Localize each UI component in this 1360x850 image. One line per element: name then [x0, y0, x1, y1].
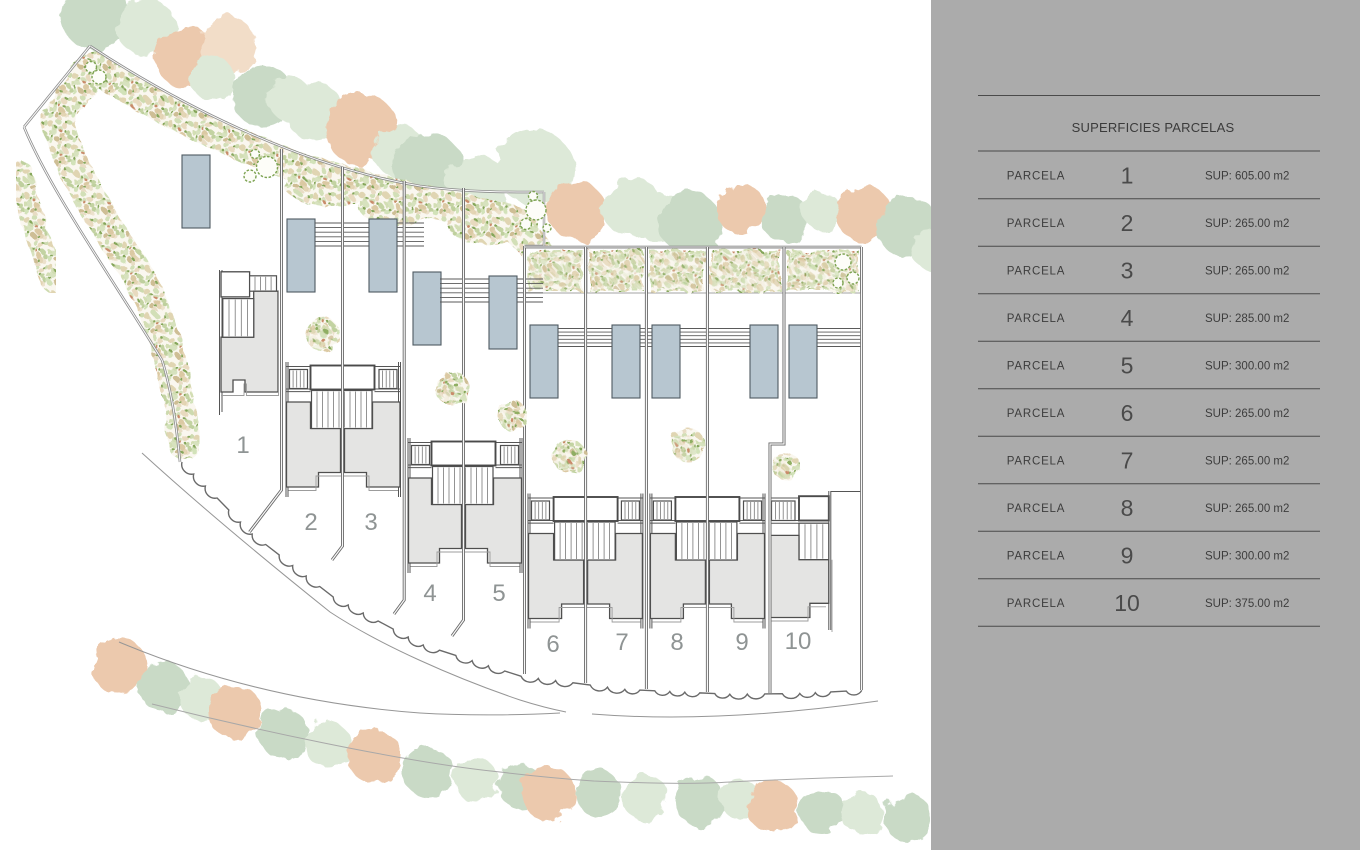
svg-text:SUP: 605.00 m2: SUP: 605.00 m2 — [1205, 171, 1289, 183]
svg-text:SUP: 285.00 m2: SUP: 285.00 m2 — [1205, 313, 1289, 325]
svg-text:8: 8 — [670, 629, 683, 656]
svg-text:6: 6 — [546, 631, 559, 658]
svg-text:PARCELA: PARCELA — [1007, 218, 1065, 230]
svg-text:SUP: 300.00 m2: SUP: 300.00 m2 — [1205, 361, 1289, 373]
svg-text:2: 2 — [1121, 210, 1134, 236]
svg-text:SUP: 265.00 m2: SUP: 265.00 m2 — [1205, 503, 1289, 515]
svg-text:1: 1 — [236, 432, 249, 459]
svg-text:SUP: 265.00 m2: SUP: 265.00 m2 — [1205, 266, 1289, 278]
svg-text:10: 10 — [785, 628, 812, 655]
svg-text:PARCELA: PARCELA — [1007, 503, 1065, 515]
svg-text:8: 8 — [1121, 495, 1134, 521]
svg-text:7: 7 — [1121, 448, 1134, 474]
svg-text:SUP: 300.00 m2: SUP: 300.00 m2 — [1205, 551, 1289, 563]
svg-text:PARCELA: PARCELA — [1007, 361, 1065, 373]
svg-text:SUP: 265.00 m2: SUP: 265.00 m2 — [1205, 408, 1289, 420]
svg-text:4: 4 — [1121, 305, 1134, 331]
svg-text:5: 5 — [1121, 353, 1134, 379]
svg-text:SUP: 265.00 m2: SUP: 265.00 m2 — [1205, 456, 1289, 468]
svg-text:3: 3 — [1121, 258, 1134, 284]
svg-text:5: 5 — [492, 580, 505, 607]
svg-text:PARCELA: PARCELA — [1007, 171, 1065, 183]
svg-text:PARCELA: PARCELA — [1007, 313, 1065, 325]
svg-text:10: 10 — [1114, 590, 1140, 616]
svg-text:4: 4 — [423, 580, 436, 607]
svg-text:6: 6 — [1121, 400, 1134, 426]
svg-text:3: 3 — [364, 509, 377, 536]
svg-text:PARCELA: PARCELA — [1007, 408, 1065, 420]
svg-text:9: 9 — [735, 629, 748, 656]
svg-text:9: 9 — [1121, 543, 1134, 569]
svg-text:7: 7 — [615, 629, 628, 656]
svg-text:SUPERFICIES PARCELAS: SUPERFICIES PARCELAS — [1072, 120, 1235, 135]
svg-text:2: 2 — [304, 509, 317, 536]
svg-text:SUP: 375.00 m2: SUP: 375.00 m2 — [1205, 598, 1289, 610]
svg-text:SUP: 265.00 m2: SUP: 265.00 m2 — [1205, 218, 1289, 230]
svg-text:PARCELA: PARCELA — [1007, 456, 1065, 468]
svg-text:PARCELA: PARCELA — [1007, 598, 1065, 610]
svg-text:1: 1 — [1121, 163, 1134, 189]
svg-text:PARCELA: PARCELA — [1007, 266, 1065, 278]
svg-text:PARCELA: PARCELA — [1007, 551, 1065, 563]
